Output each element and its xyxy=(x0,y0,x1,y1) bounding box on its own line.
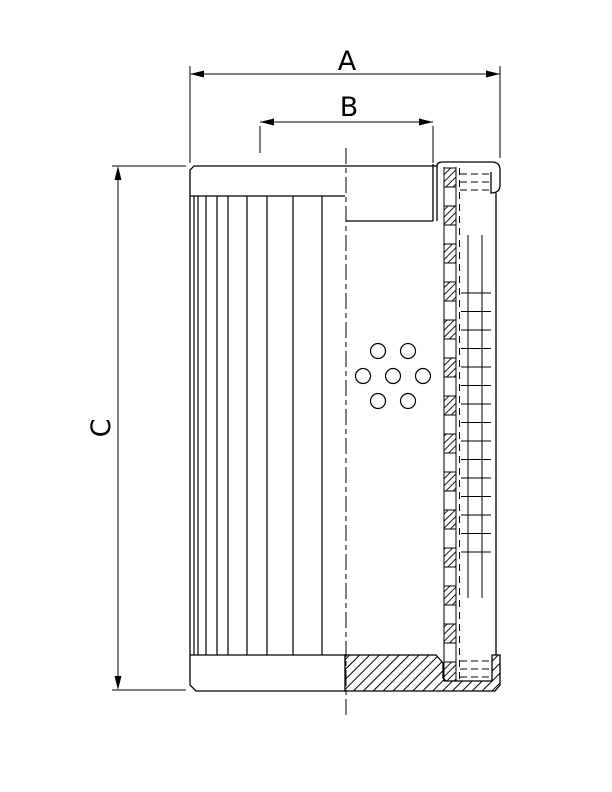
pleated-media xyxy=(194,196,322,655)
bottom-end-cap-section xyxy=(345,655,500,691)
perforation-hole xyxy=(416,369,431,384)
core-tube-cell xyxy=(444,320,456,339)
core-tube-cell xyxy=(444,510,456,529)
dimension-c-arrow-top xyxy=(115,166,122,180)
dimension-c-label: C xyxy=(86,419,117,438)
filter-element xyxy=(190,162,500,691)
top-cap-resin xyxy=(460,174,491,190)
dimension-c-arrow-bottom xyxy=(115,676,122,690)
perforation-hole xyxy=(371,344,386,359)
drawing-sheet: A B C xyxy=(0,0,612,792)
dimension-a-arrow-left xyxy=(190,71,204,78)
perforation-holes xyxy=(356,344,431,409)
core-tube-cell xyxy=(444,472,456,491)
dimension-b-label: B xyxy=(340,92,359,123)
perforation-hole xyxy=(371,394,386,409)
dimension-a-arrow-right xyxy=(486,71,500,78)
core-tube-cell xyxy=(444,624,456,643)
bottom-cap-resin xyxy=(460,661,491,677)
perforation-hole xyxy=(401,394,416,409)
filter-element-technical-drawing: A B C xyxy=(0,0,612,792)
perforation-hole xyxy=(386,369,401,384)
dimension-c: C xyxy=(86,166,186,690)
core-tube-cell xyxy=(444,662,456,681)
core-tube-cell xyxy=(444,434,456,453)
element-left-outline xyxy=(190,166,437,691)
dimension-b-arrow-right xyxy=(419,119,433,126)
core-tube-cell xyxy=(444,586,456,605)
core-tube-section xyxy=(444,168,456,681)
dimension-a-label: A xyxy=(338,46,357,77)
core-tube-cell xyxy=(444,396,456,415)
core-tube-cell xyxy=(444,548,456,567)
mesh-rungs xyxy=(461,293,491,552)
top-end-cap-inner-hub xyxy=(346,164,433,221)
dimension-b-arrow-left xyxy=(260,119,274,126)
core-tube-cell xyxy=(444,282,456,301)
core-tube-cell xyxy=(444,168,456,187)
perforation-hole xyxy=(401,344,416,359)
core-tube-cell xyxy=(444,244,456,263)
core-tube-cell xyxy=(444,358,456,377)
perforation-hole xyxy=(356,369,371,384)
core-tube-cell xyxy=(444,206,456,225)
